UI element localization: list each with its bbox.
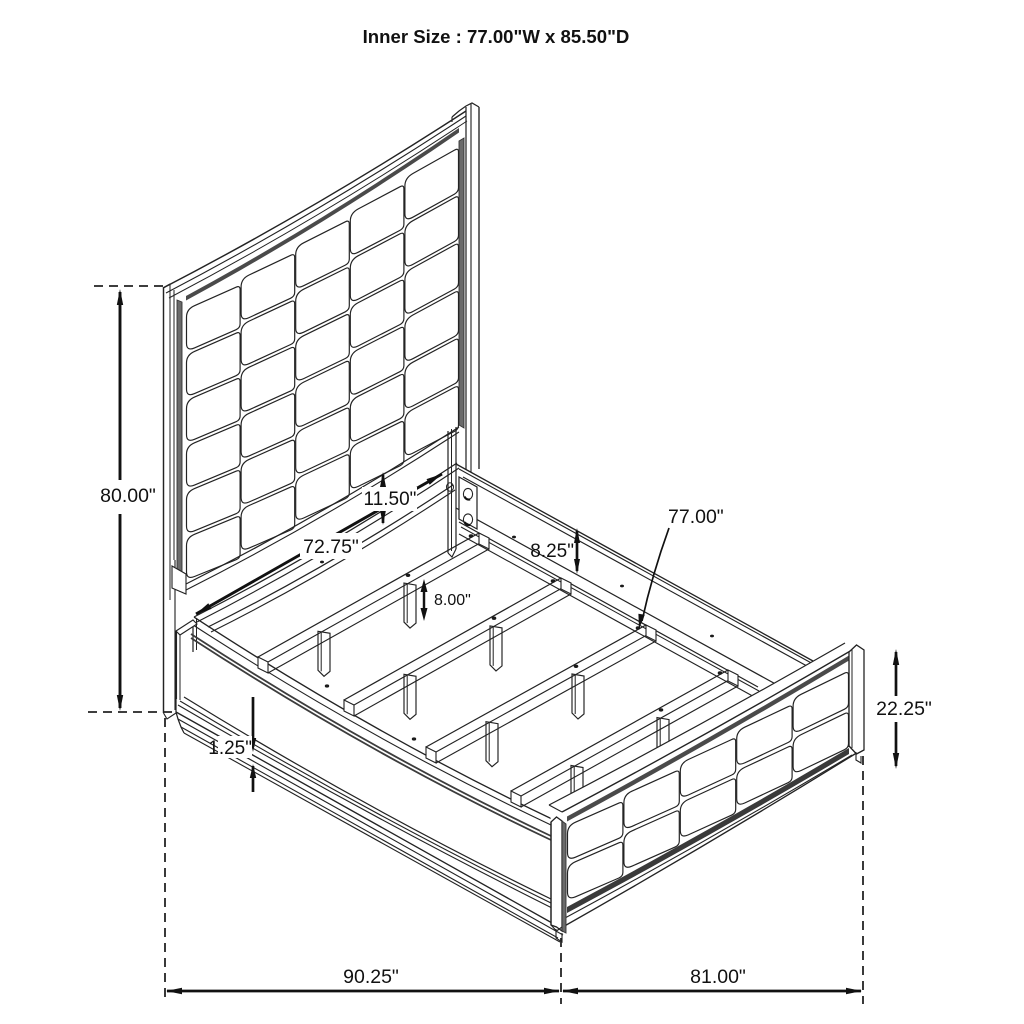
svg-text:80.00": 80.00"	[100, 485, 156, 507]
svg-text:77.00": 77.00"	[668, 506, 724, 528]
svg-text:81.00": 81.00"	[690, 966, 746, 988]
svg-text:72.75": 72.75"	[303, 536, 359, 558]
svg-text:11.50": 11.50"	[364, 489, 417, 510]
svg-text:8.00": 8.00"	[434, 592, 471, 609]
svg-text:Inner Size : 77.00"W x 85.50"D: Inner Size : 77.00"W x 85.50"D	[363, 26, 630, 47]
svg-text:90.25": 90.25"	[343, 966, 399, 988]
svg-text:8.25": 8.25"	[530, 541, 574, 562]
svg-text:1.25": 1.25"	[208, 738, 252, 759]
svg-text:22.25": 22.25"	[876, 698, 932, 720]
